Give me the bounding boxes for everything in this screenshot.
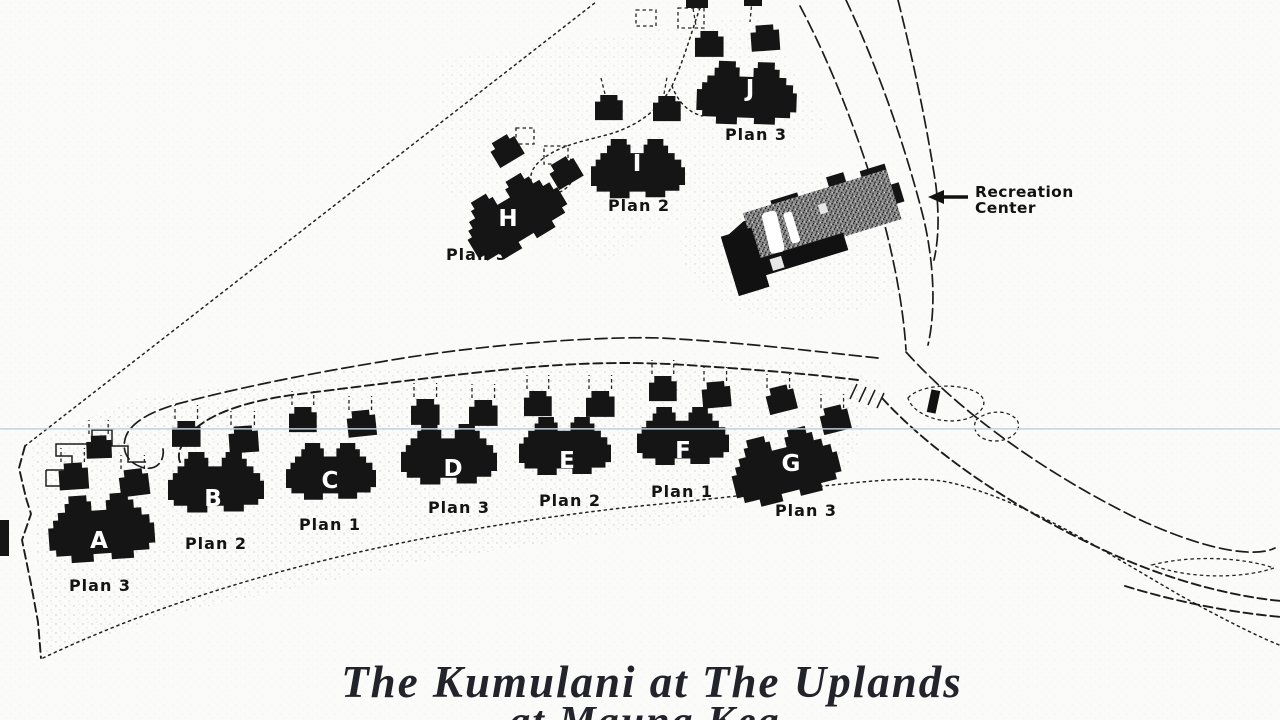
plan-label: Plan 3 bbox=[775, 501, 837, 520]
building-letter: A bbox=[90, 528, 108, 554]
site-plan-map: APlan 3BPlan 2CPlan 1DPlan 3EPlan 2FPlan… bbox=[0, 0, 1280, 720]
plan-label: Plan 2 bbox=[608, 196, 670, 215]
plan-label: Plan 1 bbox=[299, 515, 361, 534]
plan-label: Plan 3 bbox=[69, 576, 131, 595]
building-letter: H bbox=[498, 206, 517, 232]
garage-block bbox=[744, 0, 762, 6]
building-letter: C bbox=[322, 468, 339, 494]
building-letter: D bbox=[443, 456, 462, 482]
building-letter: B bbox=[204, 486, 222, 512]
plan-label: Plan 2 bbox=[539, 491, 601, 510]
plan-label: Plan 3 bbox=[725, 125, 787, 144]
plan-label: Plan 3 bbox=[446, 245, 508, 264]
building-letter: G bbox=[782, 451, 801, 477]
garage-block bbox=[686, 0, 708, 8]
plan-label: Plan 1 bbox=[651, 482, 713, 501]
map-title-line2: at Mauna Kea bbox=[509, 699, 780, 720]
site-plan-page: APlan 3BPlan 2CPlan 1DPlan 3EPlan 2FPlan… bbox=[0, 0, 1280, 720]
plan-label: Plan 3 bbox=[428, 498, 490, 517]
building-letter: F bbox=[675, 438, 691, 464]
building-letter: J bbox=[744, 76, 755, 102]
plan-label: Plan 2 bbox=[185, 534, 247, 553]
building-letter: I bbox=[633, 151, 642, 177]
building-letter: E bbox=[559, 448, 575, 474]
scan-artifact-line bbox=[0, 428, 1280, 430]
recreation-center-label-line2: Center bbox=[975, 199, 1036, 217]
edge-building-fragment bbox=[0, 520, 9, 556]
